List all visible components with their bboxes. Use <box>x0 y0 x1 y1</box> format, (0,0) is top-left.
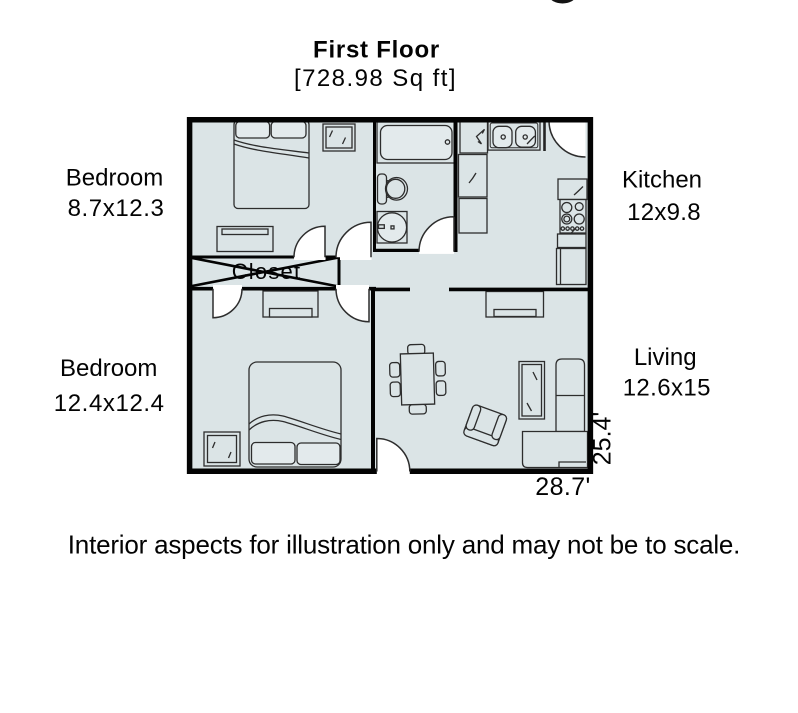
svg-text:25.4': 25.4' <box>589 412 617 465</box>
svg-text:First Floor: First Floor <box>313 37 440 64</box>
svg-text:12.6x15: 12.6x15 <box>623 374 711 401</box>
svg-text:Interior aspects for illustrat: Interior aspects for illustration only a… <box>68 530 740 560</box>
svg-text:12x9.8: 12x9.8 <box>627 199 701 226</box>
svg-text:Living: Living <box>634 344 697 371</box>
svg-text:28.7': 28.7' <box>535 473 590 501</box>
svg-text:Kitchen: Kitchen <box>622 166 702 193</box>
svg-text:12.4x12.4: 12.4x12.4 <box>54 390 165 417</box>
svg-text:8.7x12.3: 8.7x12.3 <box>68 195 165 222</box>
svg-text:Bedroom: Bedroom <box>66 165 163 192</box>
svg-text:Closet: Closet <box>232 259 302 284</box>
svg-text:Bedroom: Bedroom <box>60 355 157 382</box>
svg-text:[728.98 Sq ft]: [728.98 Sq ft] <box>294 65 457 92</box>
